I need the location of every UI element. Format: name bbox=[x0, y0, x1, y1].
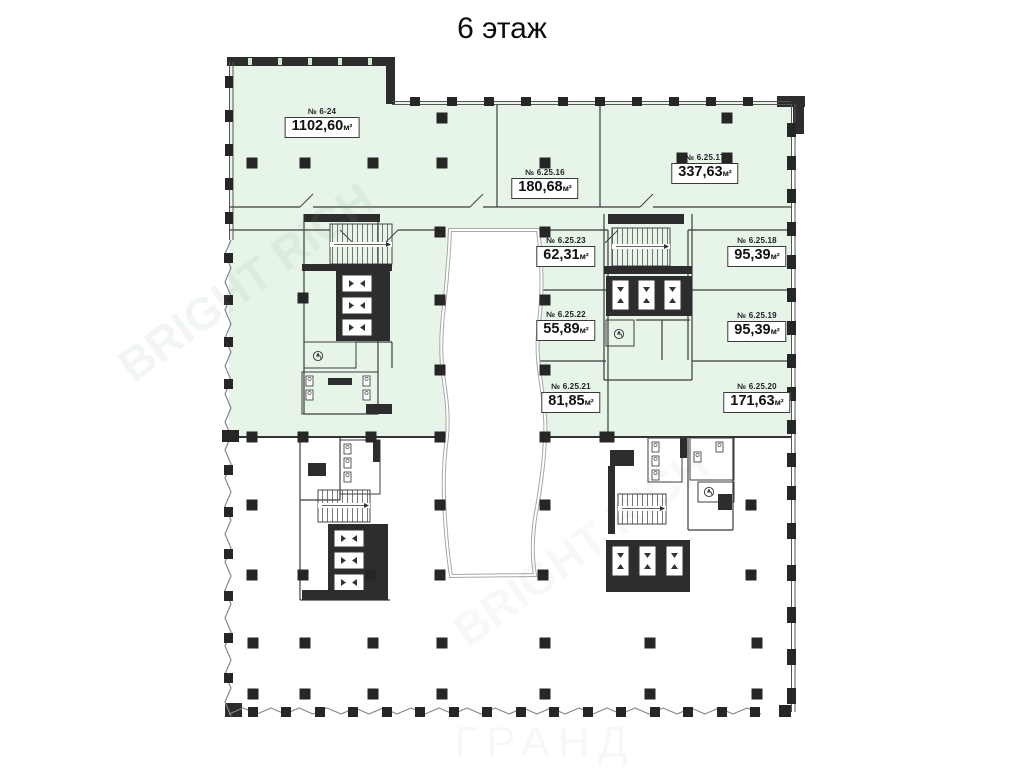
room-area-badge[interactable]: 62,31м² bbox=[536, 246, 595, 267]
elevator-icon bbox=[612, 546, 629, 576]
elevator-icon bbox=[334, 574, 364, 591]
room-label-6-25-16[interactable]: № 6.25.16 180,68м² bbox=[511, 168, 578, 199]
room-area-badge[interactable]: 95,39м² bbox=[727, 246, 786, 267]
area-unit: м² bbox=[771, 326, 780, 336]
area-unit: м² bbox=[563, 183, 572, 193]
toilet-icon bbox=[652, 442, 659, 452]
area-unit: м² bbox=[343, 122, 352, 132]
area-unit: м² bbox=[775, 397, 784, 407]
room-area-badge[interactable]: 180,68м² bbox=[511, 178, 578, 199]
toilet-icon bbox=[652, 470, 659, 480]
toilet-icon bbox=[344, 472, 351, 482]
room-number: № 6.25.17 bbox=[671, 153, 738, 162]
room-area-badge[interactable]: 1102,60м² bbox=[285, 117, 360, 138]
toilet-icon bbox=[306, 390, 313, 400]
room-label-6-25-23[interactable]: № 6.25.23 62,31м² bbox=[536, 236, 595, 267]
room-number: № 6.25.18 bbox=[727, 236, 786, 245]
elevator-icon bbox=[638, 280, 655, 310]
toilet-icon bbox=[652, 456, 659, 466]
room-number: № 6.25.20 bbox=[723, 382, 790, 391]
room-area-badge[interactable]: 337,63м² bbox=[671, 163, 738, 184]
elevator-icon bbox=[342, 297, 372, 314]
elevator-icon bbox=[639, 546, 656, 576]
room-number: № 6.25.22 bbox=[536, 310, 595, 319]
room-label-6-25-20[interactable]: № 6.25.20 171,63м² bbox=[723, 382, 790, 413]
floor-plan-drawing bbox=[0, 0, 1024, 768]
room-label-6-25-21[interactable]: № 6.25.21 81,85м² bbox=[541, 382, 600, 413]
room-number: № 6.25.23 bbox=[536, 236, 595, 245]
room-label-6-25-19[interactable]: № 6.25.19 95,39м² bbox=[727, 311, 786, 342]
area-unit: м² bbox=[580, 325, 589, 335]
room-label-6-25-17[interactable]: № 6.25.17 337,63м² bbox=[671, 153, 738, 184]
elevator-icon bbox=[666, 546, 683, 576]
toilet-icon bbox=[694, 452, 701, 462]
elevator-icon bbox=[612, 280, 629, 310]
room-label-6-24[interactable]: № 6-24 1102,60м² bbox=[285, 107, 360, 138]
room-number: № 6.25.16 bbox=[511, 168, 578, 177]
accessibility-icon bbox=[704, 487, 713, 496]
core-right-lower bbox=[606, 438, 734, 592]
room-number: № 6.25.21 bbox=[541, 382, 600, 391]
area-unit: м² bbox=[585, 397, 594, 407]
elevator-icon bbox=[342, 275, 372, 292]
room-area-badge[interactable]: 81,85м² bbox=[541, 392, 600, 413]
room-area-badge[interactable]: 95,39м² bbox=[727, 321, 786, 342]
room-label-6-25-18[interactable]: № 6.25.18 95,39м² bbox=[727, 236, 786, 267]
toilet-icon bbox=[363, 390, 370, 400]
room-area-badge[interactable]: 55,89м² bbox=[536, 320, 595, 341]
room-number: № 6.25.19 bbox=[727, 311, 786, 320]
watermark-bottom: ГРАНД bbox=[454, 718, 635, 768]
toilet-icon bbox=[363, 376, 370, 386]
room-label-6-25-22[interactable]: № 6.25.22 55,89м² bbox=[536, 310, 595, 341]
toilet-icon bbox=[716, 442, 723, 452]
area-unit: м² bbox=[580, 251, 589, 261]
elevator-icon bbox=[664, 280, 681, 310]
room-number: № 6-24 bbox=[285, 107, 360, 116]
toilet-icon bbox=[344, 444, 351, 454]
area-unit: м² bbox=[723, 168, 732, 178]
elevator-icon bbox=[342, 319, 372, 336]
area-unit: м² bbox=[771, 251, 780, 261]
toilet-icon bbox=[344, 458, 351, 468]
elevator-icon bbox=[334, 552, 364, 569]
toilet-icon bbox=[306, 376, 313, 386]
floor-plan-page: 6 этаж bbox=[0, 0, 1024, 768]
elevator-icon bbox=[334, 530, 364, 547]
atrium-void bbox=[441, 230, 545, 576]
room-area-badge[interactable]: 171,63м² bbox=[723, 392, 790, 413]
